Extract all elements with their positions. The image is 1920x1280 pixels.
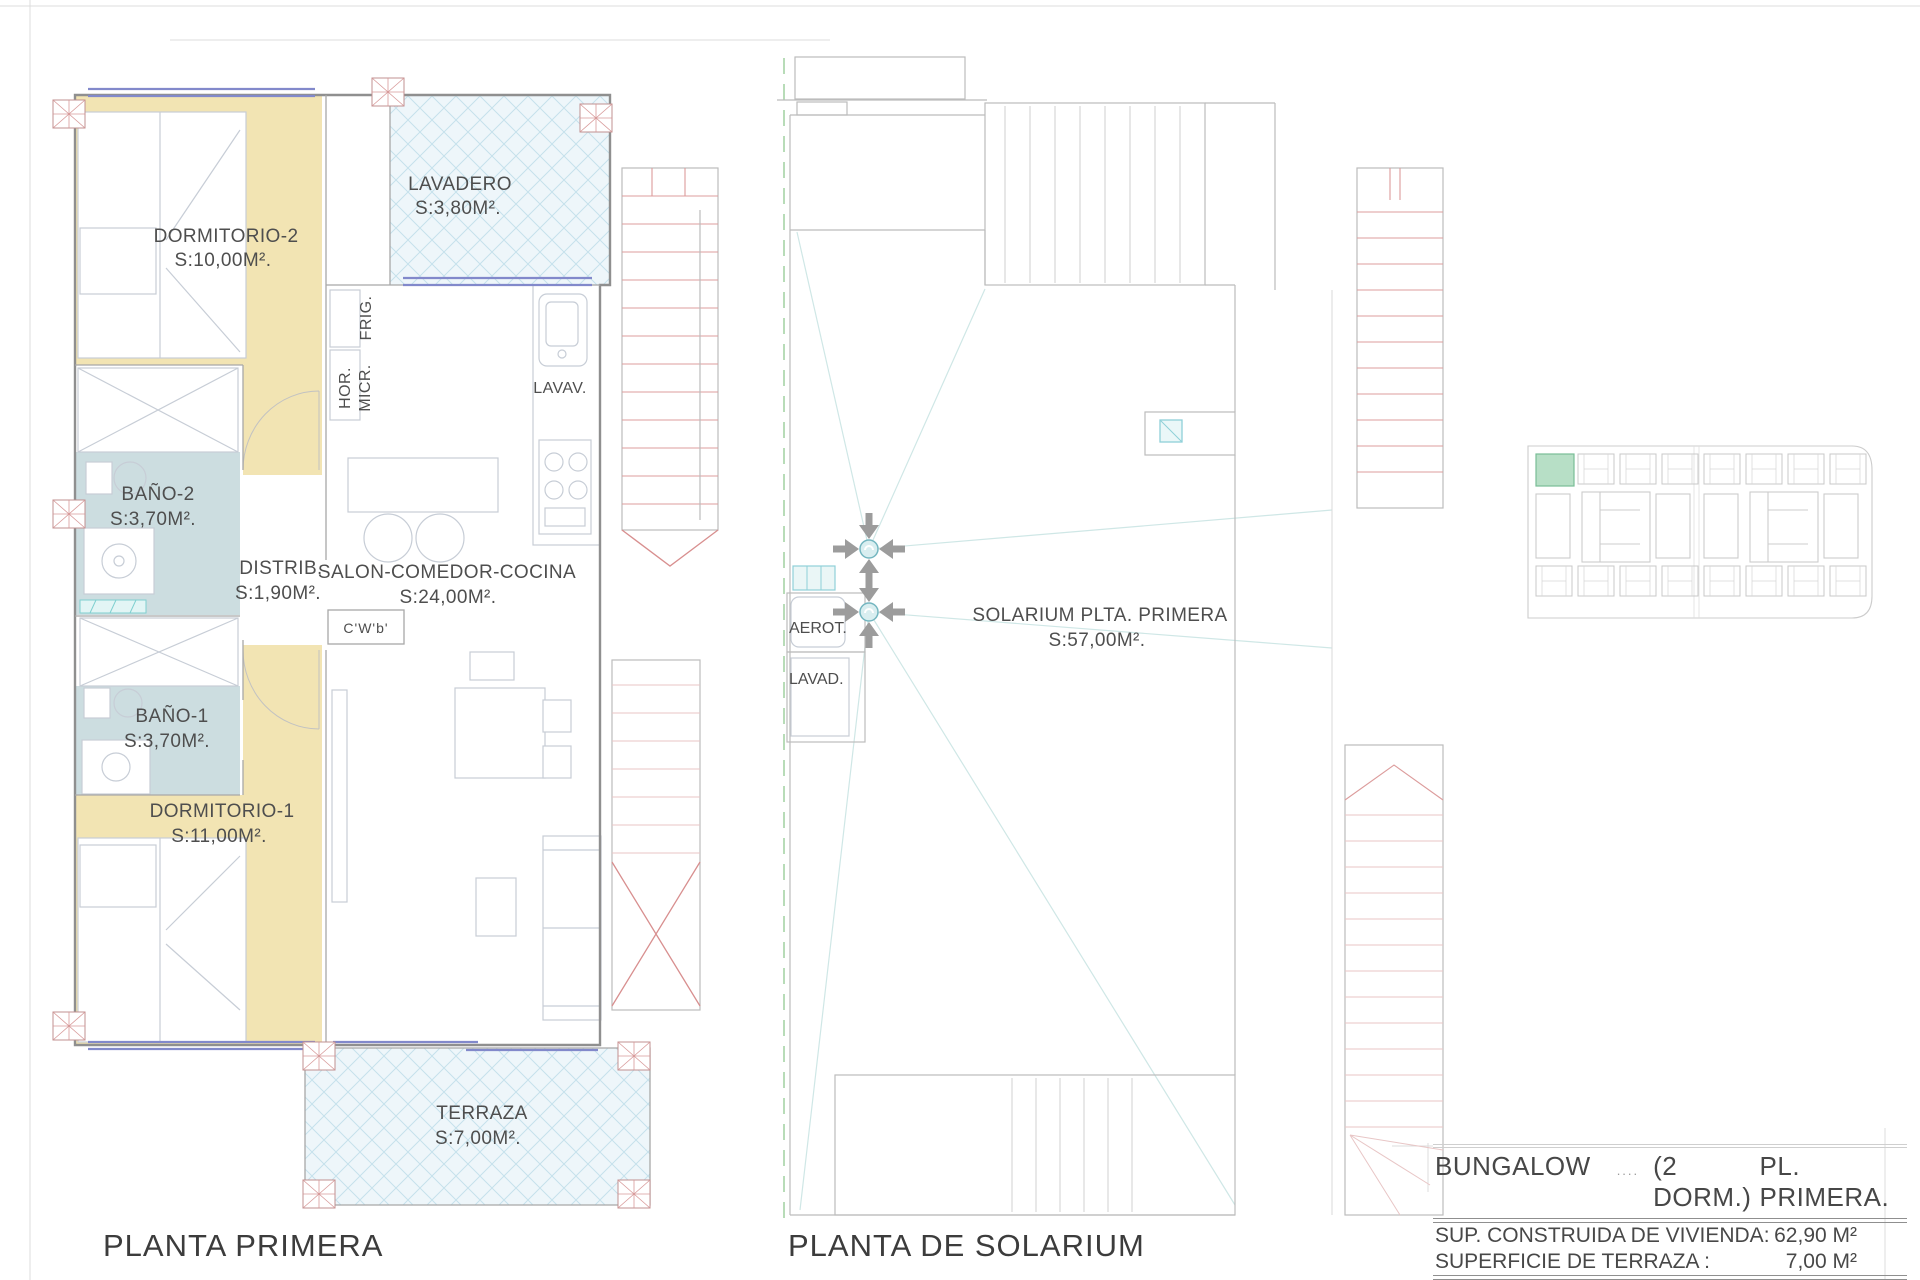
label-terraza-area: S:7,00M². xyxy=(435,1128,521,1149)
plan-title-solarium: PLANTA DE SOLARIUM xyxy=(788,1228,1145,1263)
table-header-model: BUNGALOW xyxy=(1435,1151,1591,1182)
table-header: BUNGALOW .... (2 DORM.) PL. PRIMERA. xyxy=(1433,1148,1907,1218)
label-distrib-area: S:1,90M². xyxy=(235,583,321,604)
label-lavadero-area: S:3,80M². xyxy=(415,198,501,219)
label-distrib: DISTRIB. xyxy=(239,558,322,579)
drawing-sheet: DORMITORIO-2 S:10,00M². LAVADERO S:3,80M… xyxy=(0,0,1920,1280)
table-header-floor: PL. PRIMERA. xyxy=(1760,1151,1905,1213)
label-dormitorio-1-area: S:11,00M². xyxy=(171,826,267,847)
label-micr: MICR. xyxy=(357,364,374,411)
label-hor: HOR. xyxy=(337,367,354,409)
salon-furniture xyxy=(332,458,601,1020)
table-header-blank: .... xyxy=(1617,1163,1639,1178)
site-units-bottom xyxy=(1536,566,1866,596)
label-closet: C'W'b' xyxy=(343,620,388,636)
plan-title-primera: PLANTA PRIMERA xyxy=(103,1228,383,1263)
floor-plan-solarium: SOLARIUM PLTA. PRIMERA S:57,00M². AEROT.… xyxy=(777,57,1443,1225)
exterior-stair-upper xyxy=(622,168,718,566)
site-key-plan xyxy=(1528,446,1872,618)
label-solarium-area: S:57,00M². xyxy=(1049,630,1146,651)
label-solarium: SOLARIUM PLTA. PRIMERA xyxy=(972,605,1227,626)
roof-slope-lines xyxy=(797,232,1332,1210)
site-units-top xyxy=(1578,454,1866,484)
row-value: 62,90 M² xyxy=(1774,1224,1857,1248)
table-row: SUPERFICIE DE TERRAZA : 7,00 M² xyxy=(1433,1249,1907,1275)
floor-plan-primera: DORMITORIO-2 S:10,00M². LAVADERO S:3,80M… xyxy=(53,78,718,1208)
label-bano-1-area: S:3,70M². xyxy=(124,731,210,752)
bed-dormitorio-1 xyxy=(78,838,246,1042)
lavad-room xyxy=(787,652,865,742)
label-dormitorio-2: DORMITORIO-2 xyxy=(154,226,299,247)
label-salon: SALON-COMEDOR-COCINA xyxy=(318,562,576,583)
label-dormitorio-1: DORMITORIO-1 xyxy=(150,801,295,822)
label-lavav: LAVAV. xyxy=(533,380,586,397)
summary-table: BUNGALOW .... (2 DORM.) PL. PRIMERA. SUP… xyxy=(1433,1144,1907,1280)
label-bano-2: BAÑO-2 xyxy=(121,483,194,505)
label-dormitorio-2-area: S:10,00M². xyxy=(175,250,272,271)
table-row: SUP. CONSTRUIDA DE VIVIENDA: 62,90 M² xyxy=(1433,1223,1907,1249)
row-label: SUP. CONSTRUIDA DE VIVIENDA: xyxy=(1435,1224,1770,1248)
plans-canvas: DORMITORIO-2 S:10,00M². LAVADERO S:3,80M… xyxy=(0,0,1920,1280)
label-lavadero: LAVADERO xyxy=(408,174,512,195)
label-lavad: LAVAD. xyxy=(789,671,844,688)
label-salon-area: S:24,00M². xyxy=(400,587,497,608)
label-terraza: TERRAZA xyxy=(436,1103,527,1124)
label-frig: FRIG. xyxy=(358,296,375,341)
drain-icon xyxy=(833,576,905,648)
label-aerot: AEROT. xyxy=(789,620,847,637)
row-label: SUPERFICIE DE TERRAZA : xyxy=(1435,1250,1710,1274)
drain-icon xyxy=(833,513,905,585)
row-value: 7,00 M² xyxy=(1786,1250,1857,1274)
site-center-blocks xyxy=(1536,492,1858,562)
label-bano-1: BAÑO-1 xyxy=(135,705,208,727)
solarium-stair-upper xyxy=(1357,168,1443,508)
exterior-stair-lower xyxy=(612,660,700,1010)
table-header-type: (2 DORM.) xyxy=(1653,1151,1759,1213)
label-bano-2-area: S:3,70M². xyxy=(110,509,196,530)
highlighted-unit xyxy=(1536,454,1574,486)
